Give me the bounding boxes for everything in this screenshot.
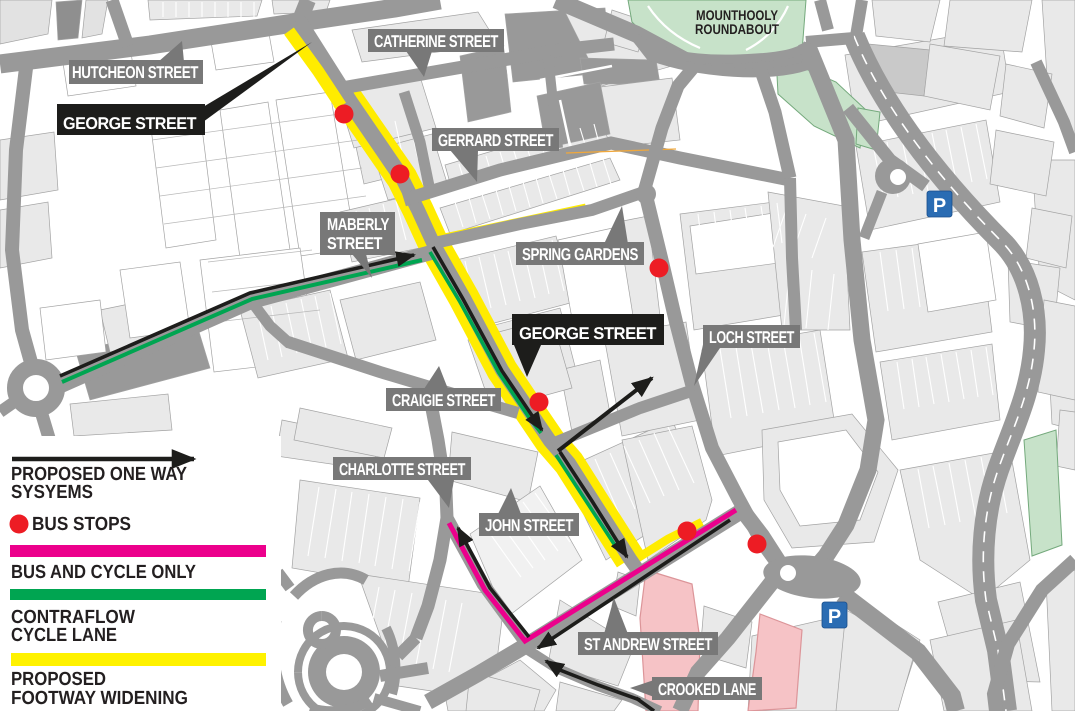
svg-text:FOOTWAY WIDENING: FOOTWAY WIDENING bbox=[11, 688, 188, 709]
svg-text:P: P bbox=[828, 606, 841, 628]
svg-text:GERRARD STREET: GERRARD STREET bbox=[438, 131, 554, 150]
svg-text:GEORGE STREET: GEORGE STREET bbox=[519, 324, 657, 343]
svg-text:HUTCHEON STREET: HUTCHEON STREET bbox=[72, 63, 199, 82]
svg-text:CYCLE LANE: CYCLE LANE bbox=[11, 625, 117, 646]
svg-text:BUS AND CYCLE ONLY: BUS AND CYCLE ONLY bbox=[11, 562, 196, 583]
svg-text:ST ANDREW STREET: ST ANDREW STREET bbox=[584, 635, 713, 654]
svg-text:CHARLOTTE STREET: CHARLOTTE STREET bbox=[339, 460, 466, 479]
svg-text:P: P bbox=[933, 195, 946, 217]
svg-text:GEORGE STREET: GEORGE STREET bbox=[63, 114, 197, 133]
svg-text:MABERLY: MABERLY bbox=[327, 215, 390, 234]
svg-text:SPRING GARDENS: SPRING GARDENS bbox=[522, 245, 638, 264]
svg-text:ROUNDABOUT: ROUNDABOUT bbox=[695, 21, 779, 37]
svg-text:PROPOSED: PROPOSED bbox=[11, 669, 106, 690]
svg-text:CRAIGIE STREET: CRAIGIE STREET bbox=[392, 391, 496, 410]
svg-text:LOCH STREET: LOCH STREET bbox=[709, 328, 795, 347]
svg-text:SYSYEMS: SYSYEMS bbox=[11, 482, 93, 503]
svg-text:CROOKED LANE: CROOKED LANE bbox=[658, 680, 756, 699]
svg-text:JOHN STREET: JOHN STREET bbox=[485, 516, 574, 535]
svg-text:BUS STOPS: BUS STOPS bbox=[32, 514, 131, 535]
svg-text:CATHERINE STREET: CATHERINE STREET bbox=[374, 32, 499, 51]
svg-text:STREET: STREET bbox=[327, 234, 383, 253]
